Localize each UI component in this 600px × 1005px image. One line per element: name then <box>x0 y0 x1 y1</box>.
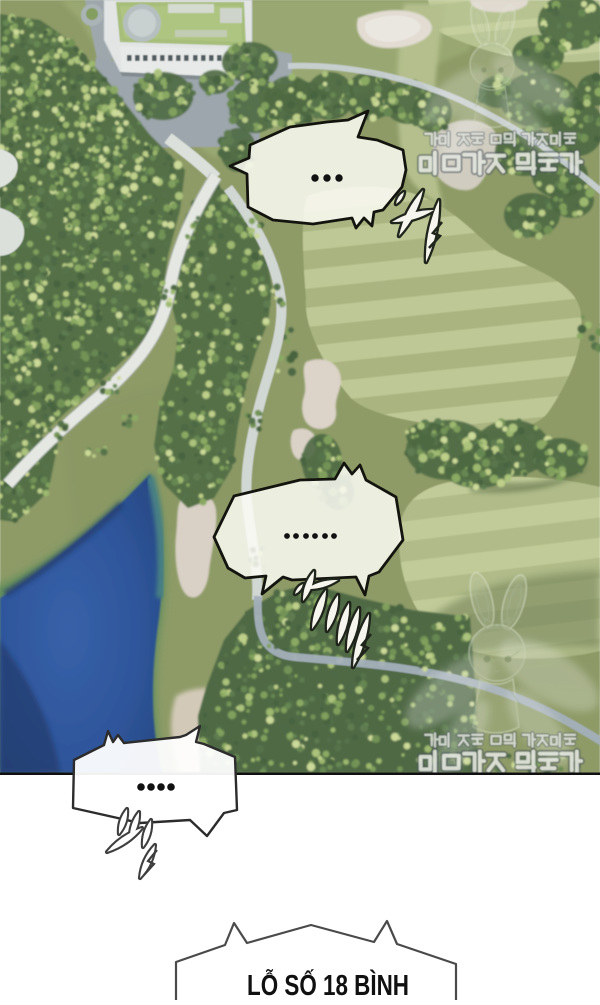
svg-text:LỖ SỐ 18 BÌNH: LỖ SỐ 18 BÌNH <box>247 968 409 1000</box>
